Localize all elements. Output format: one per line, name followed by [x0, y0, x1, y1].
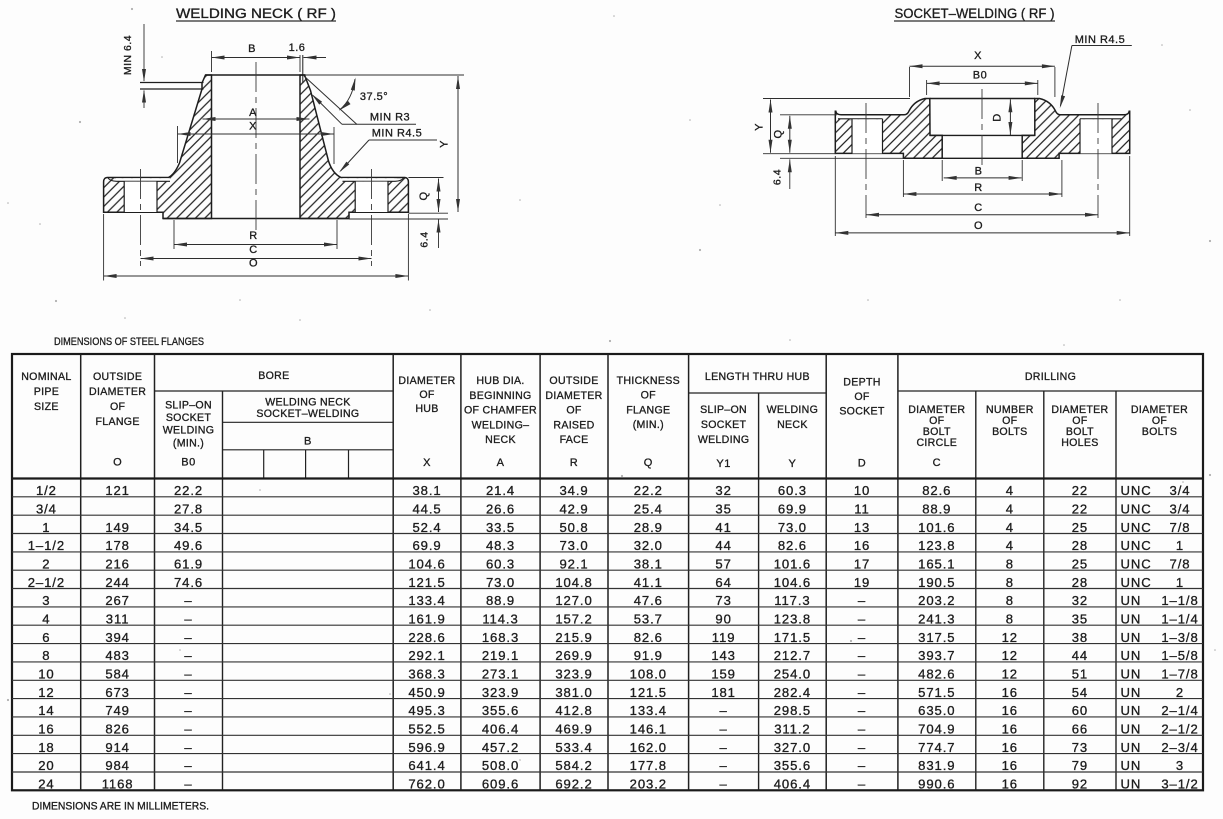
- svg-text:168.3: 168.3: [482, 630, 519, 645]
- svg-text:–: –: [184, 703, 192, 718]
- svg-text:92: 92: [1072, 777, 1088, 792]
- svg-text:–: –: [858, 648, 866, 663]
- svg-text:–: –: [184, 667, 192, 682]
- svg-text:25.4: 25.4: [634, 501, 663, 516]
- svg-text:79: 79: [1072, 758, 1088, 773]
- svg-text:DIMENSIONS ARE IN MILLIMETERS.: DIMENSIONS ARE IN MILLIMETERS.: [32, 801, 209, 813]
- svg-text:984: 984: [105, 758, 130, 773]
- svg-text:WELDING: WELDING: [163, 425, 215, 437]
- svg-text:OF CHAMFER: OF CHAMFER: [464, 405, 537, 417]
- svg-text:749: 749: [105, 703, 130, 718]
- svg-text:73.0: 73.0: [559, 538, 588, 553]
- svg-text:R: R: [249, 230, 257, 242]
- svg-text:14: 14: [38, 703, 54, 718]
- svg-text:552.5: 552.5: [408, 722, 445, 737]
- svg-text:3/4: 3/4: [1170, 501, 1191, 516]
- svg-text:Y1: Y1: [716, 458, 730, 470]
- svg-text:393.7: 393.7: [918, 648, 955, 663]
- svg-text:584.2: 584.2: [555, 758, 592, 773]
- svg-text:OF: OF: [110, 401, 126, 413]
- svg-text:121.5: 121.5: [408, 575, 445, 590]
- svg-text:17: 17: [854, 557, 870, 572]
- svg-text:8: 8: [1006, 593, 1014, 608]
- svg-text:4: 4: [1006, 520, 1014, 535]
- svg-text:SLIP–ON: SLIP–ON: [165, 400, 212, 412]
- svg-text:215.9: 215.9: [555, 630, 592, 645]
- svg-text:121: 121: [105, 483, 130, 498]
- svg-text:–: –: [858, 685, 866, 700]
- svg-text:73.0: 73.0: [778, 520, 807, 535]
- svg-text:533.4: 533.4: [555, 740, 592, 755]
- svg-text:BOLTS: BOLTS: [1142, 426, 1177, 438]
- svg-text:121.5: 121.5: [630, 685, 667, 700]
- svg-text:(MIN.): (MIN.): [633, 419, 664, 431]
- svg-text:826: 826: [105, 722, 130, 737]
- svg-text:171.5: 171.5: [774, 630, 811, 645]
- svg-text:–: –: [184, 612, 192, 627]
- svg-text:D: D: [992, 113, 1004, 121]
- svg-text:44.5: 44.5: [412, 501, 441, 516]
- svg-text:–: –: [720, 758, 728, 773]
- svg-text:38.1: 38.1: [412, 483, 441, 498]
- svg-text:3/4: 3/4: [36, 501, 57, 516]
- svg-text:DIAMETER: DIAMETER: [545, 390, 602, 402]
- svg-text:DIAMETER: DIAMETER: [89, 386, 146, 398]
- svg-text:3: 3: [42, 593, 50, 608]
- svg-text:UN: UN: [1121, 777, 1142, 792]
- svg-text:BOLTS: BOLTS: [992, 426, 1027, 438]
- svg-text:47.6: 47.6: [634, 593, 663, 608]
- svg-text:A: A: [249, 107, 257, 119]
- svg-text:143: 143: [711, 648, 736, 663]
- svg-text:21.4: 21.4: [486, 483, 515, 498]
- svg-text:SIZE: SIZE: [34, 401, 59, 413]
- svg-text:41: 41: [715, 520, 731, 535]
- svg-text:16: 16: [854, 538, 870, 553]
- svg-text:–: –: [184, 758, 192, 773]
- svg-text:16: 16: [1002, 758, 1018, 773]
- svg-text:74.6: 74.6: [174, 575, 203, 590]
- svg-text:1–1/8: 1–1/8: [1161, 593, 1198, 608]
- svg-text:10: 10: [38, 667, 54, 682]
- svg-text:BORE: BORE: [258, 370, 289, 382]
- svg-text:44: 44: [1072, 648, 1088, 663]
- svg-text:DIMENSIONS OF STEEL FLANGES: DIMENSIONS OF STEEL FLANGES: [54, 336, 204, 348]
- svg-text:16: 16: [1002, 685, 1018, 700]
- svg-text:254.0: 254.0: [774, 667, 811, 682]
- svg-text:MIN R4.5: MIN R4.5: [1075, 34, 1125, 46]
- svg-text:692.2: 692.2: [555, 777, 592, 792]
- svg-text:1: 1: [1176, 538, 1184, 553]
- svg-text:108.0: 108.0: [630, 667, 667, 682]
- svg-text:61.9: 61.9: [174, 557, 203, 572]
- svg-text:203.2: 203.2: [918, 593, 955, 608]
- svg-text:190.5: 190.5: [918, 575, 955, 590]
- svg-text:WELDING NECK: WELDING NECK: [265, 397, 350, 409]
- svg-text:483: 483: [105, 648, 130, 663]
- svg-text:3–1/2: 3–1/2: [1161, 777, 1198, 792]
- svg-text:–: –: [184, 722, 192, 737]
- svg-text:FLANGE: FLANGE: [626, 404, 670, 416]
- svg-text:119: 119: [712, 630, 736, 645]
- svg-text:762.0: 762.0: [408, 777, 445, 792]
- svg-text:101.6: 101.6: [918, 520, 955, 535]
- svg-text:OUTSIDE: OUTSIDE: [549, 375, 598, 387]
- svg-text:42.9: 42.9: [559, 501, 588, 516]
- svg-text:1–1/4: 1–1/4: [1161, 612, 1198, 627]
- svg-text:HOLES: HOLES: [1061, 437, 1098, 449]
- svg-text:34.9: 34.9: [559, 483, 588, 498]
- svg-text:317.5: 317.5: [918, 630, 955, 645]
- svg-text:WELDING NECK ( RF ): WELDING NECK ( RF ): [176, 6, 336, 21]
- svg-text:16: 16: [38, 722, 54, 737]
- svg-text:635.0: 635.0: [918, 703, 955, 718]
- svg-text:X: X: [423, 457, 431, 469]
- svg-text:1–3/8: 1–3/8: [1161, 630, 1198, 645]
- svg-text:–: –: [858, 593, 866, 608]
- svg-text:69.9: 69.9: [412, 538, 441, 553]
- svg-text:495.3: 495.3: [408, 703, 445, 718]
- svg-text:123.8: 123.8: [774, 612, 811, 627]
- svg-text:323.9: 323.9: [555, 667, 592, 682]
- svg-text:104.8: 104.8: [555, 575, 592, 590]
- svg-text:2–3/4: 2–3/4: [1161, 740, 1198, 755]
- svg-text:165.1: 165.1: [918, 557, 955, 572]
- svg-text:596.9: 596.9: [408, 740, 445, 755]
- svg-text:27.8: 27.8: [174, 501, 203, 516]
- svg-text:8: 8: [1006, 557, 1014, 572]
- svg-text:127.0: 127.0: [555, 593, 592, 608]
- svg-text:6.4: 6.4: [419, 231, 431, 247]
- svg-text:412.8: 412.8: [555, 703, 592, 718]
- svg-text:292.1: 292.1: [408, 648, 445, 663]
- svg-text:22.2: 22.2: [174, 483, 203, 498]
- svg-text:12: 12: [1002, 630, 1018, 645]
- svg-text:90: 90: [715, 612, 731, 627]
- svg-text:35: 35: [1072, 612, 1088, 627]
- svg-text:–: –: [720, 722, 728, 737]
- svg-text:149: 149: [105, 520, 130, 535]
- svg-text:2: 2: [42, 557, 50, 572]
- svg-text:–: –: [858, 722, 866, 737]
- svg-text:117.3: 117.3: [774, 593, 810, 608]
- svg-text:25: 25: [1072, 557, 1088, 572]
- svg-text:457.2: 457.2: [482, 740, 519, 755]
- svg-text:2–1/4: 2–1/4: [1161, 703, 1198, 718]
- svg-text:25: 25: [1072, 520, 1088, 535]
- svg-text:16: 16: [1002, 777, 1018, 792]
- svg-text:50.8: 50.8: [559, 520, 588, 535]
- svg-text:82.6: 82.6: [922, 483, 951, 498]
- svg-text:OUTSIDE: OUTSIDE: [93, 371, 142, 383]
- svg-text:DIAMETER: DIAMETER: [398, 375, 455, 387]
- svg-text:NECK: NECK: [485, 434, 516, 446]
- svg-text:–: –: [858, 667, 866, 682]
- svg-text:B: B: [304, 436, 312, 448]
- svg-text:SOCKET–WELDING: SOCKET–WELDING: [256, 408, 359, 420]
- svg-text:53.7: 53.7: [634, 612, 663, 627]
- svg-text:16: 16: [1002, 703, 1018, 718]
- svg-text:267: 267: [105, 593, 130, 608]
- svg-text:D: D: [858, 458, 866, 470]
- svg-text:Y: Y: [788, 458, 796, 470]
- svg-text:60.3: 60.3: [778, 483, 807, 498]
- svg-text:1: 1: [42, 520, 50, 535]
- svg-text:UN: UN: [1121, 758, 1142, 773]
- svg-text:35: 35: [715, 501, 731, 516]
- svg-text:33.5: 33.5: [486, 520, 515, 535]
- svg-text:–: –: [184, 685, 192, 700]
- svg-text:MIN 6.4: MIN 6.4: [122, 35, 134, 75]
- svg-text:–: –: [184, 630, 192, 645]
- svg-text:UN: UN: [1121, 648, 1142, 663]
- svg-text:UNC: UNC: [1121, 520, 1152, 535]
- svg-text:157.2: 157.2: [555, 612, 592, 627]
- svg-text:1–5/8: 1–5/8: [1161, 648, 1198, 663]
- svg-text:228.6: 228.6: [408, 630, 445, 645]
- svg-text:B: B: [248, 43, 256, 55]
- svg-text:UNC: UNC: [1121, 538, 1152, 553]
- svg-text:–: –: [720, 777, 728, 792]
- svg-text:WELDING: WELDING: [698, 434, 750, 446]
- svg-text:4: 4: [42, 612, 50, 627]
- svg-text:6.4: 6.4: [772, 169, 784, 185]
- svg-text:212.7: 212.7: [774, 648, 811, 663]
- svg-text:DEPTH: DEPTH: [843, 377, 880, 389]
- svg-text:282.4: 282.4: [774, 685, 811, 700]
- svg-text:CIRCLE: CIRCLE: [916, 437, 957, 449]
- svg-text:64: 64: [715, 575, 731, 590]
- svg-text:–: –: [858, 758, 866, 773]
- svg-text:R: R: [974, 182, 982, 194]
- svg-text:28: 28: [1072, 575, 1088, 590]
- svg-text:Y: Y: [439, 140, 451, 148]
- svg-text:1–7/8: 1–7/8: [1161, 667, 1198, 682]
- svg-text:UN: UN: [1121, 630, 1142, 645]
- svg-text:–: –: [184, 777, 192, 792]
- svg-text:3: 3: [1176, 758, 1184, 773]
- svg-text:SLIP–ON: SLIP–ON: [700, 404, 747, 416]
- svg-text:298.5: 298.5: [774, 703, 811, 718]
- svg-text:57: 57: [715, 557, 731, 572]
- svg-text:244: 244: [105, 575, 130, 590]
- svg-text:HUB DIA.: HUB DIA.: [476, 375, 524, 387]
- svg-text:406.4: 406.4: [774, 777, 811, 792]
- svg-text:UNC: UNC: [1121, 557, 1152, 572]
- svg-text:THICKNESS: THICKNESS: [617, 375, 680, 387]
- svg-text:178: 178: [105, 538, 130, 553]
- svg-text:38: 38: [1072, 630, 1088, 645]
- svg-text:8: 8: [42, 648, 50, 663]
- svg-text:60: 60: [1072, 703, 1088, 718]
- svg-text:RAISED: RAISED: [553, 419, 594, 431]
- svg-text:181: 181: [711, 685, 736, 700]
- svg-text:241.3: 241.3: [918, 612, 955, 627]
- svg-text:60.3: 60.3: [486, 557, 515, 572]
- svg-text:–: –: [184, 593, 192, 608]
- svg-text:4: 4: [1006, 538, 1014, 553]
- svg-text:73: 73: [715, 593, 731, 608]
- svg-text:584: 584: [105, 667, 130, 682]
- svg-text:34.5: 34.5: [174, 520, 203, 535]
- svg-text:LENGTH THRU HUB: LENGTH THRU HUB: [705, 371, 810, 383]
- svg-text:NECK: NECK: [777, 419, 808, 431]
- svg-text:UN: UN: [1121, 740, 1142, 755]
- svg-text:92.1: 92.1: [559, 557, 588, 572]
- svg-text:641.4: 641.4: [408, 758, 445, 773]
- svg-text:51: 51: [1072, 667, 1088, 682]
- svg-text:355.6: 355.6: [774, 758, 811, 773]
- svg-text:C: C: [249, 244, 257, 256]
- svg-text:3/4: 3/4: [1170, 483, 1191, 498]
- svg-text:B0: B0: [181, 457, 195, 469]
- svg-text:8: 8: [1006, 575, 1014, 590]
- svg-text:22.2: 22.2: [634, 483, 663, 498]
- svg-text:1/2: 1/2: [36, 483, 57, 498]
- svg-text:48.3: 48.3: [486, 538, 515, 553]
- svg-text:–: –: [858, 703, 866, 718]
- svg-text:WELDING: WELDING: [767, 404, 819, 416]
- svg-text:323.9: 323.9: [482, 685, 519, 700]
- svg-text:HUB: HUB: [415, 403, 438, 415]
- svg-text:73.0: 73.0: [486, 575, 515, 590]
- svg-text:SOCKET–WELDING ( RF ): SOCKET–WELDING ( RF ): [895, 6, 1055, 21]
- svg-text:O: O: [113, 457, 122, 469]
- svg-text:123.8: 123.8: [918, 538, 955, 553]
- svg-text:44: 44: [715, 538, 731, 553]
- svg-text:10: 10: [854, 483, 870, 498]
- svg-text:–: –: [858, 630, 866, 645]
- svg-text:–: –: [720, 740, 728, 755]
- svg-text:482.6: 482.6: [918, 667, 955, 682]
- svg-text:88.9: 88.9: [486, 593, 515, 608]
- svg-text:368.3: 368.3: [408, 667, 445, 682]
- svg-text:18: 18: [38, 740, 54, 755]
- svg-text:11: 11: [854, 501, 869, 516]
- svg-text:16: 16: [1002, 722, 1018, 737]
- svg-text:12: 12: [1002, 667, 1018, 682]
- svg-text:1168: 1168: [102, 777, 134, 792]
- svg-text:394: 394: [105, 630, 130, 645]
- svg-text:159: 159: [711, 667, 736, 682]
- svg-text:1–1/2: 1–1/2: [28, 538, 65, 553]
- svg-text:104.6: 104.6: [774, 575, 811, 590]
- svg-text:406.4: 406.4: [482, 722, 519, 737]
- svg-text:91.9: 91.9: [634, 648, 663, 663]
- svg-text:X: X: [249, 121, 257, 133]
- svg-text:2–1/2: 2–1/2: [28, 575, 65, 590]
- svg-text:MIN R3: MIN R3: [370, 112, 410, 124]
- svg-text:2: 2: [1176, 685, 1184, 700]
- svg-text:OF: OF: [641, 390, 657, 402]
- svg-text:41.1: 41.1: [634, 575, 663, 590]
- svg-text:355.6: 355.6: [482, 703, 519, 718]
- svg-text:2–1/2: 2–1/2: [1161, 722, 1198, 737]
- svg-text:–: –: [858, 740, 866, 755]
- svg-text:UNC: UNC: [1121, 483, 1152, 498]
- svg-text:PIPE: PIPE: [34, 386, 59, 398]
- svg-text:990.6: 990.6: [918, 777, 955, 792]
- svg-text:146.1: 146.1: [630, 722, 667, 737]
- svg-text:1: 1: [1176, 575, 1184, 590]
- svg-text:52.4: 52.4: [412, 520, 441, 535]
- svg-text:311.2: 311.2: [774, 722, 810, 737]
- svg-text:508.0: 508.0: [482, 758, 519, 773]
- svg-text:7/8: 7/8: [1170, 520, 1191, 535]
- svg-text:FACE: FACE: [560, 434, 589, 446]
- svg-text:FLANGE: FLANGE: [96, 416, 140, 428]
- svg-text:X: X: [974, 50, 982, 62]
- svg-text:216: 216: [105, 557, 130, 572]
- svg-text:C: C: [974, 202, 982, 214]
- svg-text:571.5: 571.5: [918, 685, 955, 700]
- svg-text:327.0: 327.0: [774, 740, 811, 755]
- svg-text:UN: UN: [1121, 612, 1142, 627]
- svg-text:311: 311: [106, 612, 130, 627]
- svg-text:28: 28: [1072, 538, 1088, 553]
- svg-text:Y: Y: [754, 123, 766, 131]
- svg-text:7/8: 7/8: [1170, 557, 1191, 572]
- svg-text:UNC: UNC: [1121, 501, 1152, 516]
- svg-text:450.9: 450.9: [408, 685, 445, 700]
- svg-text:–: –: [858, 612, 866, 627]
- svg-text:WELDING–: WELDING–: [472, 419, 530, 431]
- svg-text:673: 673: [105, 685, 130, 700]
- svg-text:54: 54: [1072, 685, 1088, 700]
- svg-text:203.2: 203.2: [630, 777, 667, 792]
- svg-text:73: 73: [1072, 740, 1088, 755]
- svg-text:609.6: 609.6: [482, 777, 519, 792]
- svg-text:O: O: [249, 258, 258, 270]
- svg-text:704.9: 704.9: [918, 722, 955, 737]
- svg-text:114.3: 114.3: [482, 612, 518, 627]
- svg-text:6: 6: [42, 630, 50, 645]
- svg-text:–: –: [858, 777, 866, 792]
- svg-text:219.1: 219.1: [482, 648, 519, 663]
- svg-text:32.0: 32.0: [634, 538, 663, 553]
- svg-text:269.9: 269.9: [555, 648, 592, 663]
- svg-text:161.9: 161.9: [408, 612, 445, 627]
- svg-text:A: A: [497, 457, 505, 469]
- svg-text:UNC: UNC: [1121, 575, 1152, 590]
- svg-text:12: 12: [38, 685, 54, 700]
- svg-text:69.9: 69.9: [778, 501, 807, 516]
- svg-text:BEGINNING: BEGINNING: [469, 390, 531, 402]
- svg-text:8: 8: [1006, 612, 1014, 627]
- svg-text:101.6: 101.6: [774, 557, 811, 572]
- svg-text:12: 12: [1002, 648, 1018, 663]
- svg-text:DRILLING: DRILLING: [1025, 371, 1076, 383]
- svg-text:B0: B0: [973, 70, 987, 82]
- svg-text:273.1: 273.1: [482, 667, 519, 682]
- svg-text:22: 22: [1072, 501, 1088, 516]
- svg-text:469.9: 469.9: [555, 722, 592, 737]
- svg-text:(MIN.): (MIN.): [173, 437, 204, 449]
- svg-text:NOMINAL: NOMINAL: [21, 371, 71, 383]
- svg-text:R: R: [570, 457, 578, 469]
- svg-text:4: 4: [1006, 483, 1014, 498]
- svg-text:177.8: 177.8: [630, 758, 667, 773]
- svg-text:B: B: [975, 166, 983, 178]
- svg-text:49.6: 49.6: [174, 538, 203, 553]
- svg-text:381.0: 381.0: [555, 685, 592, 700]
- svg-text:Q: Q: [418, 191, 430, 200]
- svg-text:162.0: 162.0: [630, 740, 667, 755]
- svg-text:SOCKET: SOCKET: [839, 406, 885, 418]
- svg-text:OF: OF: [854, 391, 870, 403]
- svg-text:831.9: 831.9: [918, 758, 955, 773]
- svg-text:Q: Q: [644, 457, 653, 469]
